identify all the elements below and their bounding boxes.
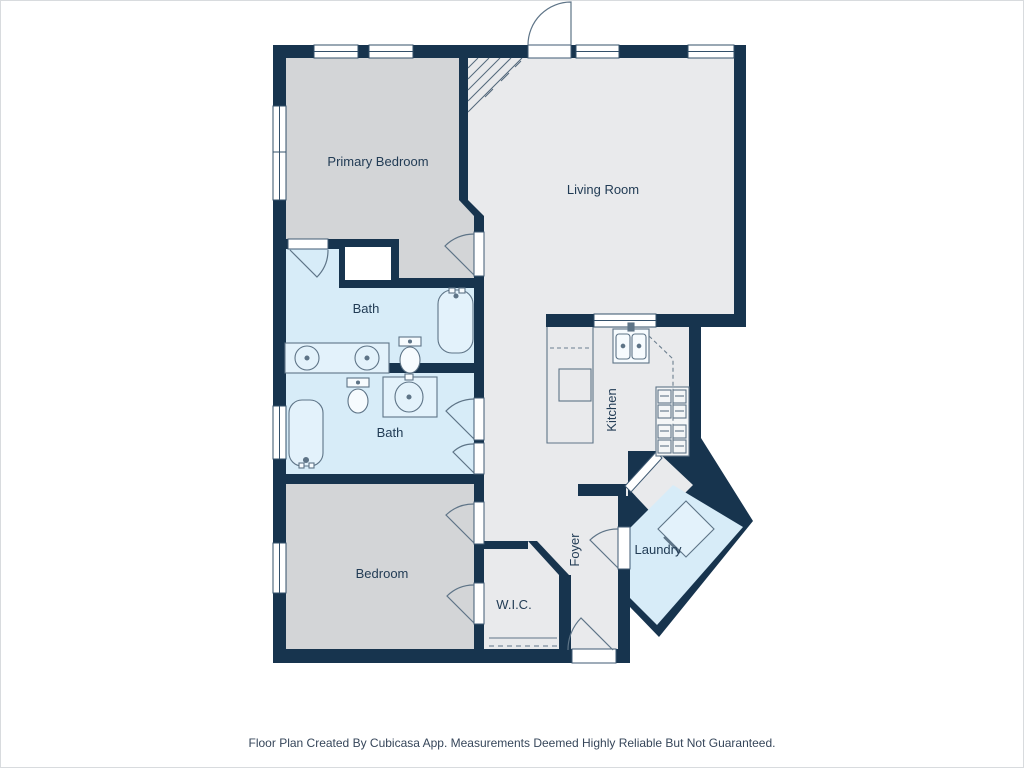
window-bath-left <box>273 406 286 459</box>
vanity-double <box>285 343 389 373</box>
hall-floor <box>484 314 546 451</box>
label-living-room: Living Room <box>567 182 639 197</box>
window-kitchen <box>594 314 656 327</box>
label-bedroom: Bedroom <box>356 566 409 581</box>
door-gap-bedroom-2 <box>474 583 484 624</box>
window-bedroom-left <box>273 543 286 593</box>
door-gap-bath-upper-entry <box>288 239 328 249</box>
door-leaf-balcony <box>528 45 571 58</box>
label-wic: W.I.C. <box>496 597 531 612</box>
window-primary-top-1 <box>314 45 358 58</box>
label-bath-upper: Bath <box>353 301 380 316</box>
door-gap-primary <box>474 232 484 276</box>
label-laundry: Laundry <box>635 542 682 557</box>
floor-plan-page: Primary Bedroom Living Room Bath Bath Be… <box>0 0 1024 768</box>
door-gap-bath-lower-2 <box>474 443 484 474</box>
bathtub-lower <box>289 400 323 468</box>
toilet-lower <box>347 378 369 413</box>
label-primary-bedroom: Primary Bedroom <box>327 154 428 169</box>
door-gap-bath-lower-1 <box>474 398 484 440</box>
toilet-upper <box>399 337 421 373</box>
window-living-top-1 <box>576 45 619 58</box>
door-gap-laundry <box>618 527 630 569</box>
bathtub-upper <box>438 288 473 353</box>
label-kitchen: Kitchen <box>604 388 619 431</box>
window-primary-left <box>273 106 286 200</box>
door-gap-bedroom-1 <box>474 502 484 544</box>
kitchen-sink <box>613 323 649 363</box>
sink-lower <box>383 374 437 417</box>
label-bath-lower: Bath <box>377 425 404 440</box>
foyer-wic-floor <box>484 451 628 649</box>
window-primary-top-2 <box>369 45 413 58</box>
label-foyer: Foyer <box>567 533 582 567</box>
closet <box>345 247 391 280</box>
floor-plan-canvas: Primary Bedroom Living Room Bath Bath Be… <box>1 1 1024 768</box>
kitchen-island <box>559 369 591 401</box>
door-gap-entry <box>572 649 616 663</box>
door-arc-balcony <box>528 2 571 45</box>
window-living-top-2 <box>688 45 734 58</box>
footer-disclaimer: Floor Plan Created By Cubicasa App. Meas… <box>249 736 776 750</box>
